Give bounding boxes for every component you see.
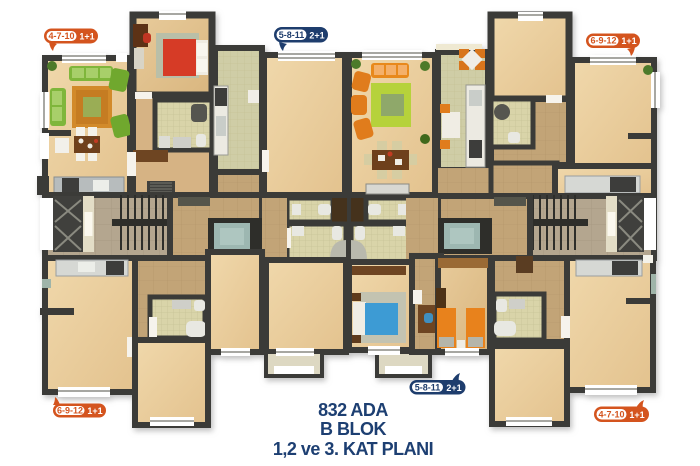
svg-text:1+1: 1+1 (79, 32, 94, 42)
svg-text:6-9-12: 6-9-12 (590, 36, 616, 46)
svg-text:1+1: 1+1 (621, 36, 636, 46)
svg-text:B BLOK: B BLOK (320, 419, 386, 439)
svg-text:5-8-11: 5-8-11 (415, 383, 441, 393)
svg-text:2+1: 2+1 (309, 31, 324, 41)
svg-text:1+1: 1+1 (629, 410, 644, 420)
svg-text:6-9-12: 6-9-12 (57, 406, 83, 416)
svg-text:5-8-11: 5-8-11 (279, 30, 305, 40)
svg-text:2+1: 2+1 (446, 383, 461, 393)
svg-text:4-7-10: 4-7-10 (48, 31, 74, 41)
svg-text:832 ADA: 832 ADA (318, 400, 388, 420)
svg-text:4-7-10: 4-7-10 (598, 410, 624, 420)
svg-text:1,2 ve 3. KAT PLANI: 1,2 ve 3. KAT PLANI (273, 439, 433, 459)
svg-text:1+1: 1+1 (87, 406, 102, 416)
